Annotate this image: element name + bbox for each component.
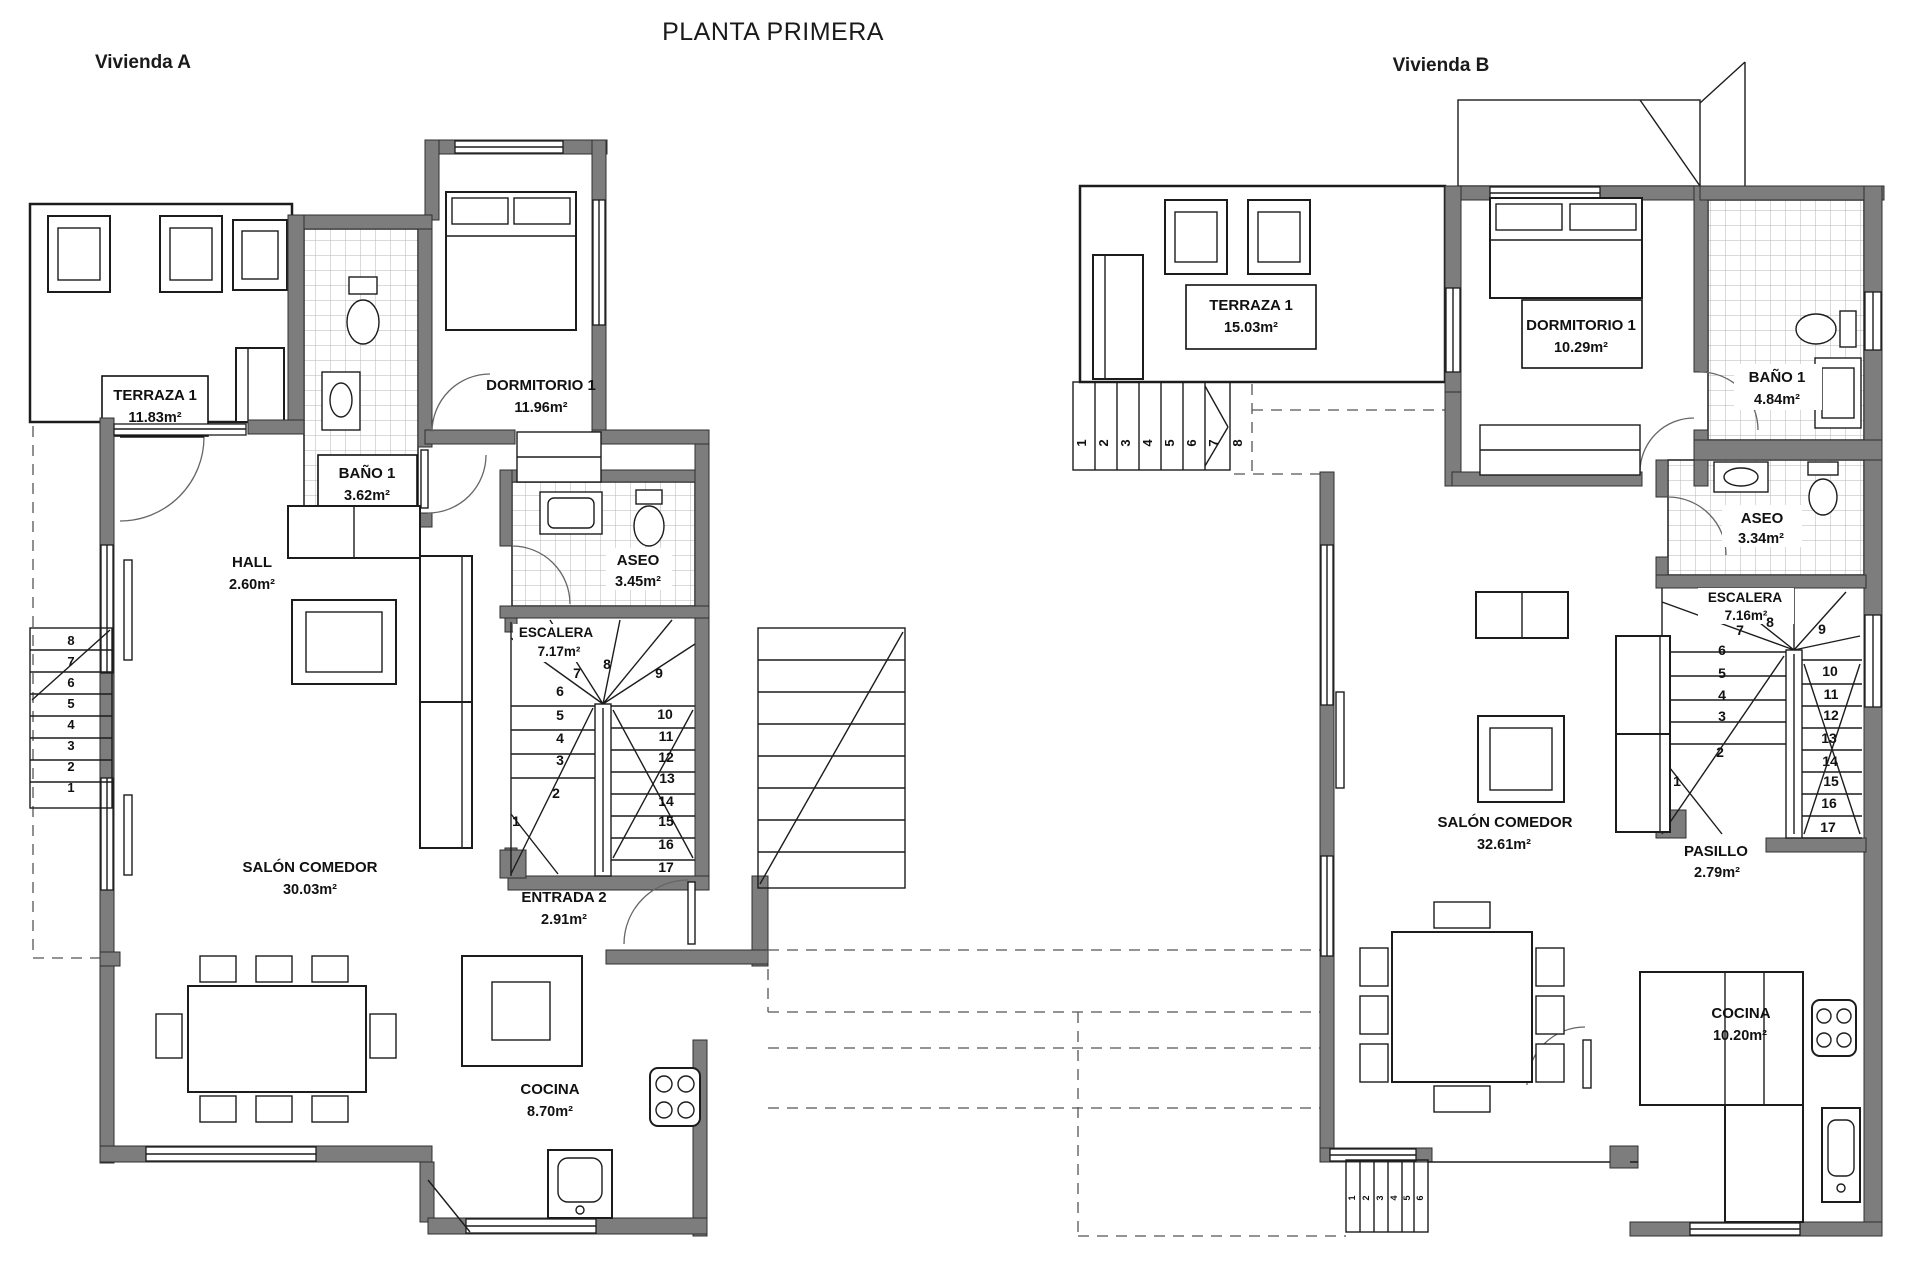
- stair-step-number: 2: [1361, 1195, 1371, 1200]
- stair-a-ext-numbers: 12345678: [67, 633, 75, 795]
- escalera-b-area: 7.16m²: [1725, 608, 1768, 623]
- stair-step-number: 3: [67, 738, 74, 753]
- radiator-icon: [1336, 692, 1344, 788]
- stair-step-number: 6: [1718, 642, 1726, 658]
- stair-step-number: 17: [658, 859, 674, 875]
- stair-step-number: 1: [512, 813, 520, 829]
- stair-step-number: 15: [1823, 773, 1839, 789]
- bano-b-name: BAÑO 1: [1749, 368, 1806, 386]
- stair-step-number: 10: [657, 706, 673, 722]
- stair-step-number: 13: [1821, 730, 1837, 746]
- armchair-icon: [1248, 200, 1310, 274]
- stair-step-number: 8: [603, 656, 611, 672]
- vivienda-b-title: Vivienda B: [1393, 55, 1490, 76]
- sofa-icon: [420, 556, 472, 848]
- sideboard-icon: [1476, 592, 1568, 638]
- stair-step-number: 1: [67, 780, 74, 795]
- stair-step-number: 2: [1096, 439, 1111, 446]
- stair-step-number: 4: [1389, 1195, 1399, 1200]
- stair-step-number: 11: [659, 728, 674, 744]
- toilet-icon: [634, 490, 664, 546]
- door-leaf: [1583, 1040, 1591, 1088]
- stair-step-number: 7: [67, 654, 74, 669]
- cocina-a-name: COCINA: [520, 1081, 579, 1098]
- entrada-a-area: 2.91m²: [541, 912, 587, 928]
- salon-a-area: 30.03m²: [283, 882, 337, 898]
- hall-a-area: 2.60m²: [229, 577, 275, 593]
- stair-step-number: 2: [67, 759, 74, 774]
- terrace-b: TERRAZA 1 15.03m²: [1080, 186, 1445, 382]
- stair-step-number: 5: [67, 696, 74, 711]
- coffee-table-icon: [1478, 716, 1564, 802]
- hall-a-name: HALL: [232, 554, 272, 571]
- aseo-a-name: ASEO: [617, 552, 660, 569]
- stair-a-interior: ESCALERA 7.17m² 123456789101112131415161…: [511, 620, 695, 876]
- escalera-b-name: ESCALERA: [1708, 590, 1783, 605]
- stair-step-number: 5: [1402, 1195, 1412, 1200]
- stair-step-number: 4: [1718, 687, 1726, 703]
- stair-step-number: 3: [1118, 439, 1133, 446]
- sideboard-icon: [288, 506, 420, 558]
- cocina-b-name: COCINA: [1711, 1005, 1770, 1022]
- salon-b-area: 32.61m²: [1477, 837, 1531, 853]
- stair-b-ext-numbers: 12345678: [1074, 439, 1245, 447]
- chair-icon: [233, 220, 287, 290]
- stair-step-number: 4: [67, 717, 75, 732]
- sofa-icon: [1093, 255, 1143, 379]
- entrada-a-name: ENTRADA 2: [521, 889, 606, 906]
- vivienda-a-title: Vivienda A: [95, 52, 191, 73]
- stair-step-number: 14: [1822, 753, 1838, 769]
- stair-step-number: 6: [556, 683, 564, 699]
- walkway-dashed: [768, 950, 1346, 1236]
- stair-b-exterior: 12345678: [1073, 382, 1445, 474]
- stair-step-number: 16: [658, 836, 674, 852]
- stair-step-number: 6: [1184, 439, 1199, 446]
- stair-step-number: 16: [1821, 795, 1837, 811]
- stair-step-number: 2: [552, 785, 560, 801]
- dormitorio-b-label-box: [1522, 300, 1642, 368]
- dining-table-icon: [156, 956, 396, 1122]
- plan-vivienda-b: TERRAZA 1 15.03m² 12345678: [1073, 62, 1884, 1236]
- stair-step-number: 8: [1766, 614, 1774, 630]
- stair-step-number: 7: [1736, 622, 1744, 638]
- plan-vivienda-a: TERRAZA 1 11.83m²: [30, 140, 905, 1236]
- bano-b-area: 4.84m²: [1754, 392, 1800, 408]
- deck-dashed-edge-a: [33, 426, 100, 958]
- stove-icon: [650, 1068, 700, 1126]
- terraza-a-name: TERRAZA 1: [113, 387, 197, 404]
- stair-step-number: 5: [1162, 439, 1177, 446]
- dormitorio-b-area: 10.29m²: [1554, 340, 1608, 356]
- kitchen-island-icon: [462, 956, 582, 1066]
- floor-plan-drawing: PLANTA PRIMERA Vivienda A Vivienda B TER…: [0, 0, 1920, 1280]
- stair-step-number: 6: [1415, 1195, 1425, 1200]
- armchair-icon: [1165, 200, 1227, 274]
- escalera-a-area: 7.17m²: [538, 644, 581, 659]
- stair-step-number: 15: [658, 813, 674, 829]
- page-title: PLANTA PRIMERA: [662, 18, 884, 46]
- bano-a-name: BAÑO 1: [339, 464, 396, 482]
- toilet-icon: [1808, 462, 1838, 515]
- stair-step-number: 5: [1718, 665, 1726, 681]
- bed-icon: [446, 192, 576, 330]
- stair-step-number: 10: [1822, 663, 1838, 679]
- bed-icon: [1490, 198, 1642, 298]
- coffee-table-icon: [292, 600, 396, 684]
- toilet-icon: [1796, 311, 1856, 347]
- floor-plan-page: PLANTA PRIMERA Vivienda A Vivienda B TER…: [0, 0, 1920, 1280]
- cocina-a-area: 8.70m²: [527, 1104, 573, 1120]
- dormitorio-a-area: 11.96m²: [514, 400, 567, 416]
- stair-step-number: 8: [67, 633, 74, 648]
- stair-step-number: 1: [1673, 773, 1681, 789]
- stair-step-number: 13: [659, 770, 675, 786]
- aseo-b-area: 3.34m²: [1738, 531, 1784, 547]
- armchair-icon: [160, 216, 222, 292]
- closet-icon: [517, 432, 601, 482]
- stair-a-porch: [758, 628, 905, 888]
- stair-step-number: 1: [1074, 439, 1089, 446]
- stair-step-number: 5: [556, 707, 564, 723]
- stair-step-number: 14: [658, 793, 674, 809]
- washbasin-icon: [322, 372, 360, 430]
- escalera-a-name: ESCALERA: [519, 625, 594, 640]
- cocina-b-area: 10.20m²: [1713, 1028, 1767, 1044]
- toilet-icon: [347, 277, 379, 344]
- armchair-icon: [48, 216, 110, 292]
- stair-step-number: 7: [573, 665, 581, 681]
- washbasin-icon: [1714, 462, 1768, 492]
- terraza-b-label-box: [1186, 285, 1316, 349]
- stair-step-number: 7: [1206, 439, 1221, 446]
- stair-step-number: 3: [1375, 1195, 1385, 1200]
- terraza-b-name: TERRAZA 1: [1209, 297, 1293, 314]
- door-leaf: [688, 882, 695, 944]
- dormitorio-b-name: DORMITORIO 1: [1526, 317, 1636, 334]
- sink-icon: [548, 1150, 612, 1218]
- salon-a-name: SALÓN COMEDOR: [243, 858, 378, 876]
- stair-step-number: 4: [1140, 439, 1155, 447]
- bano-a-area: 3.62m²: [344, 488, 390, 504]
- roof-stair-b: [1458, 62, 1745, 186]
- sink-icon: [540, 492, 602, 534]
- pasillo-area: 2.79m²: [1694, 865, 1740, 881]
- stove-icon: [1812, 1000, 1856, 1056]
- stair-step-number: 12: [658, 749, 674, 765]
- stair-b-interior: ESCALERA 7.16m² 123456789101112131415161…: [1662, 588, 1862, 838]
- sink-icon: [1822, 1108, 1860, 1202]
- sofa-icon: [236, 348, 284, 422]
- pasillo-name: PASILLO: [1684, 843, 1748, 860]
- stair-b-porch: 123456: [1346, 1160, 1638, 1232]
- stair-step-number: 9: [655, 665, 663, 681]
- stair-step-number: 3: [1718, 708, 1726, 724]
- salon-b-name: SALÓN COMEDOR: [1438, 813, 1573, 831]
- stair-step-number: 9: [1818, 621, 1826, 637]
- aseo-b-name: ASEO: [1741, 510, 1784, 527]
- dining-table-icon: [1360, 902, 1564, 1112]
- stair-step-number: 4: [556, 730, 564, 746]
- aseo-a-area: 3.45m²: [615, 574, 661, 590]
- stair-step-number: 11: [1824, 686, 1839, 702]
- terraza-b-area: 15.03m²: [1224, 320, 1278, 336]
- radiator-icon: [124, 560, 132, 875]
- door-leaf: [421, 450, 428, 508]
- closet-icon: [1480, 425, 1640, 475]
- stair-step-number: 6: [67, 675, 74, 690]
- sofa-icon: [1616, 636, 1670, 832]
- stair-step-number: 8: [1230, 439, 1245, 446]
- stair-step-number: 2: [1716, 744, 1724, 760]
- stair-step-number: 3: [556, 752, 564, 768]
- stair-step-number: 17: [1820, 819, 1836, 835]
- stair-step-number: 12: [1823, 707, 1839, 723]
- stair-step-number: 1: [1347, 1195, 1357, 1200]
- dormitorio-a-name: DORMITORIO 1: [486, 377, 596, 394]
